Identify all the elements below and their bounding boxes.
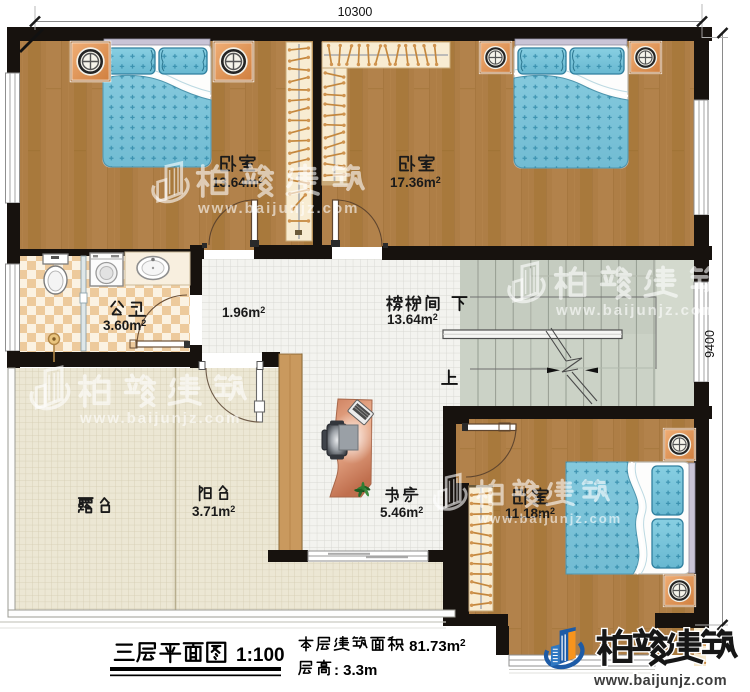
- svg-text:1:100: 1:100: [236, 645, 285, 666]
- svg-text:3.60m2: 3.60m2: [103, 318, 146, 333]
- svg-text:9400: 9400: [703, 330, 717, 358]
- svg-text:www.baijunjz.com: www.baijunjz.com: [197, 200, 359, 217]
- svg-text:www.baijunjz.com: www.baijunjz.com: [555, 302, 717, 319]
- svg-text:17.36m2: 17.36m2: [390, 175, 441, 190]
- svg-text:3.71m2: 3.71m2: [192, 504, 235, 519]
- svg-text:1.96m2: 1.96m2: [222, 305, 265, 320]
- svg-text:: 81.73m2: : 81.73m2: [400, 638, 466, 655]
- svg-text:www.baijunjz.com: www.baijunjz.com: [593, 673, 727, 689]
- svg-text:www.baijunjz.com: www.baijunjz.com: [79, 410, 241, 427]
- svg-text:www.baijunjz.com: www.baijunjz.com: [477, 511, 622, 526]
- svg-text:10300: 10300: [338, 5, 373, 19]
- svg-text:: 3.3m: : 3.3m: [334, 662, 377, 679]
- svg-text:5.46m2: 5.46m2: [380, 505, 423, 520]
- svg-text:13.64m2: 13.64m2: [387, 312, 438, 327]
